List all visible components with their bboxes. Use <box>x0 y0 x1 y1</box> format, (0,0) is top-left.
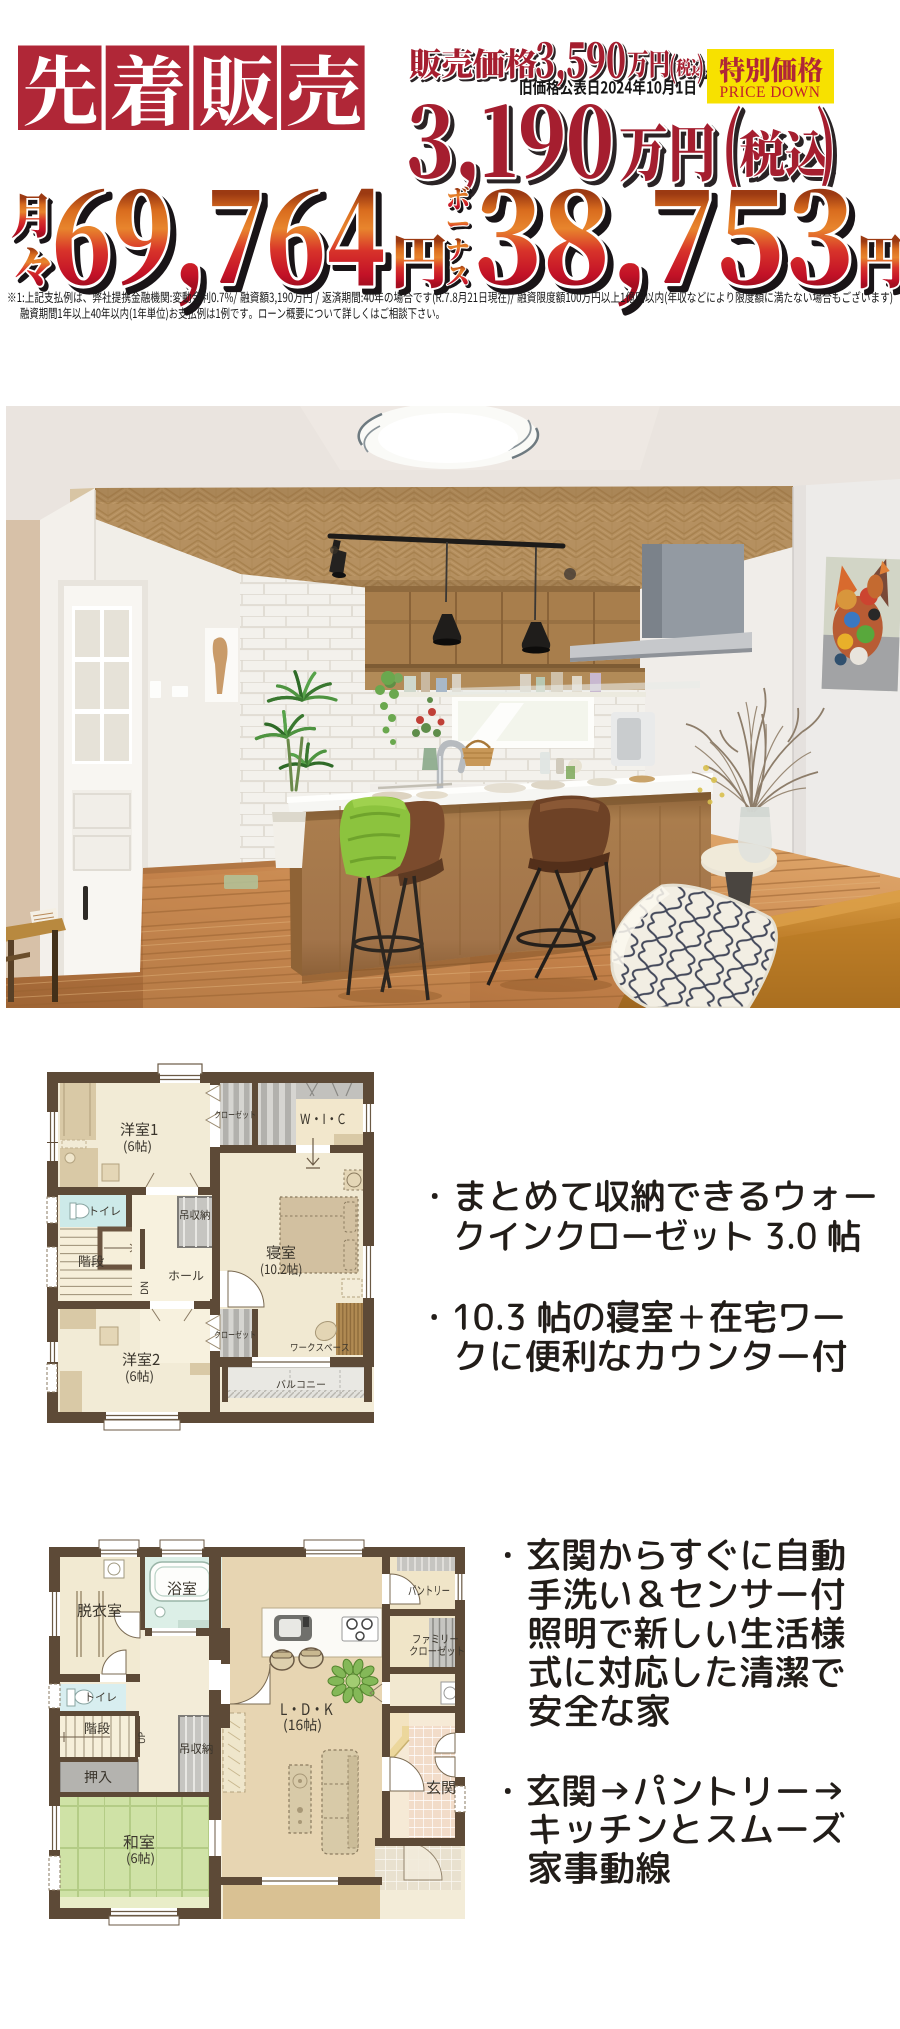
svg-text:PRICE DOWN: PRICE DOWN <box>719 84 820 101</box>
